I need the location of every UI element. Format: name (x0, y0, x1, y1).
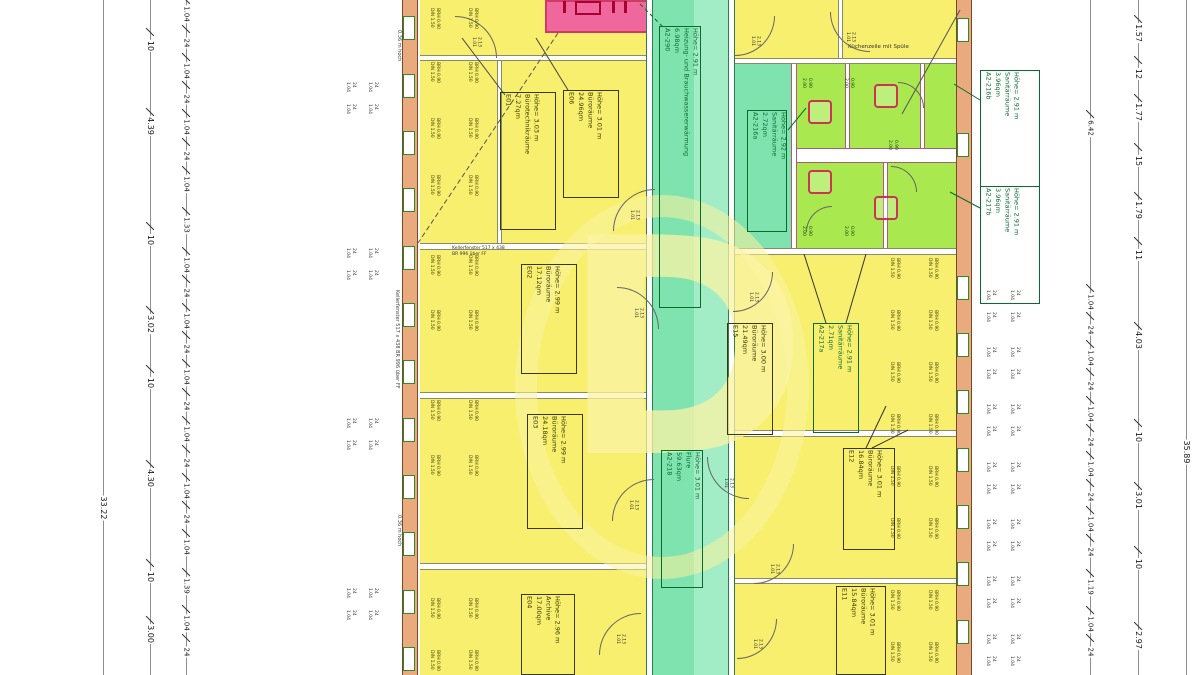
window (403, 647, 415, 671)
wall (845, 64, 850, 148)
window-dim-mark: 1.0424 (1008, 576, 1020, 586)
window (403, 418, 415, 442)
window-dim-mark: 1.0424 (984, 426, 996, 436)
room-use: Bürotechnikräume (522, 94, 531, 228)
dim-label-left-window: 1.04 (183, 175, 190, 193)
window-dim-mark: 1.0424 (1008, 290, 1020, 300)
plumbing-wall (797, 148, 956, 163)
dim-label-right-main: 15 (1134, 155, 1142, 167)
room-height: Höhe= 2.96 m (552, 596, 561, 673)
room-use: Sanitärräume (835, 325, 844, 431)
window-dim-mark: 1.0424 (984, 462, 996, 472)
window-dim-mark: 1.0424 (344, 440, 356, 450)
window (403, 16, 415, 40)
dim-label-left-main: 4.30 (146, 468, 154, 488)
room-area: 17.12qm (533, 266, 542, 372)
room-use: Büroräume (585, 92, 594, 196)
room-label-san216a: A2-216a 2.72qm Sanitärräume Höhe= 2.92 m (747, 110, 787, 232)
dim-label-left-window: 1.04 (183, 5, 190, 23)
room-id: E04 (524, 596, 533, 673)
window-spec-label: DIN 1.50BRH 0.90 (926, 310, 938, 331)
window-dim-mark: 1.0424 (1008, 541, 1020, 551)
dim-total-right: 35.89 (1182, 440, 1190, 465)
window-spec-label: DIN 1.50BRH 0.90 (926, 258, 938, 279)
room-id: E12 (846, 450, 855, 548)
dim-label-right-main: 10 (1134, 558, 1142, 570)
window-dim-mark: 1.0424 (984, 576, 996, 586)
elevator-mark (624, 1, 627, 13)
room-height: Höhe= 3.01 m (874, 450, 883, 548)
room-use: Büroräume (858, 588, 867, 673)
dim-label-right-window: 24 (1087, 492, 1094, 503)
window (403, 303, 415, 327)
window-dim-mark: 1.0424 (366, 588, 378, 598)
room-height: Höhe= 3.00 m (758, 325, 767, 433)
dim-label-right-window: 1.04 (1087, 615, 1094, 633)
dim-label-right-window: 24 (1087, 547, 1094, 558)
dim-label-right-window: 1.04 (1087, 460, 1094, 478)
window (957, 18, 969, 42)
window-spec-label: DIN 1.50BRH 0.90 (428, 598, 440, 619)
window-dim-mark: 1.0424 (984, 598, 996, 608)
dim-label-right-main: 1.77 (1134, 102, 1142, 122)
window-spec-label: DIN 1.50BRH 0.90 (926, 518, 938, 539)
room-use: Sanitärräume (769, 112, 778, 230)
dim-label-left-window: 1.33 (183, 216, 190, 234)
dim-label-left-main: 10 (146, 571, 154, 583)
dim-label-right-window: 1.04 (1087, 515, 1094, 533)
window (403, 590, 415, 614)
room-label-san216b: A2-216b 3.96qm Sanitärräume Höhe= 2.91 m (980, 70, 1040, 188)
window-spec-label: DIN 1.50BRH 0.90 (888, 590, 900, 611)
window-dim-mark: 1.0424 (366, 82, 378, 92)
room-height: Höhe= 2.91 m (1011, 188, 1020, 302)
sanitary-dim-mark: 2.000.90 (842, 78, 854, 88)
room-area: 3.96qm (992, 72, 1001, 186)
dim-line-right-total (1186, 0, 1187, 675)
window-dim-mark: 1.0424 (1008, 347, 1020, 357)
toilet-fixture (874, 196, 898, 220)
dim-label-right-main: 1.79 (1134, 200, 1142, 220)
door-size-label: 1.012.13 (632, 308, 643, 318)
dim-label-right-window: 1.04 (1087, 405, 1094, 423)
dim-label-left-window: 24 (183, 38, 190, 49)
room-use: Büroräume (865, 450, 874, 548)
window (403, 131, 415, 155)
wall (420, 55, 646, 61)
room-id: E06 (566, 92, 575, 196)
window (957, 620, 969, 644)
dim-label-left-window: 24 (183, 288, 190, 299)
dim-label-left-window: 24 (183, 647, 190, 658)
room-id: E15 (730, 325, 739, 433)
dim-label-left-window: 24 (183, 344, 190, 355)
room-id: E01 (503, 94, 512, 228)
window-spec-label: DIN 1.50BRH 0.90 (428, 8, 440, 29)
window-spec-label: DIN 1.50BRH 0.90 (466, 455, 478, 476)
window (403, 532, 415, 556)
window-dim-mark: 1.0424 (1008, 312, 1020, 322)
window-dim-mark: 1.0424 (344, 270, 356, 280)
room-label-san217b: A2-217b 3.96qm Sanitärräume Höhe= 2.91 m (980, 186, 1040, 304)
dim-label-left-window: 1.04 (183, 614, 190, 632)
window-dim-mark: 1.0424 (1008, 519, 1020, 529)
room-label-heating: A2-290 6.98qm Heizung- und Brauchwassere… (659, 26, 701, 308)
dim-label-right-window: 6.42 (1087, 119, 1094, 137)
window-spec-label: DIN 1.50BRH 0.90 (466, 175, 478, 196)
window-dim-mark: 1.0424 (366, 270, 378, 280)
room-id: E11 (839, 588, 848, 673)
dim-label-left-window: 24 (183, 458, 190, 469)
room-label-e04: E04 17.00qm Archive Höhe= 2.96 m (521, 594, 575, 675)
door-size-label: 1.012.13 (628, 210, 639, 220)
room-id: A2-217a (816, 325, 825, 431)
window (403, 74, 415, 98)
room-id: E03 (530, 416, 539, 527)
room-label-e06: E06 24.96qm Büroräume Höhe= 3.01 m (563, 90, 619, 198)
room-label-e02: E02 17.12qm Büroräume Höhe= 2.99 m (521, 264, 577, 374)
door-size-label: 1.012.13 (614, 634, 625, 644)
window-dim-mark: 1.0424 (984, 484, 996, 494)
dim-label-left-window: 24 (183, 151, 190, 162)
window (957, 562, 969, 586)
window (957, 333, 969, 357)
window-dim-mark: 1.0424 (1008, 634, 1020, 644)
toilet-fixture (808, 170, 832, 194)
room-height: Höhe= 3.03 m (531, 94, 540, 228)
sanitary-dim-mark: 2.000.90 (842, 226, 854, 236)
room-area: 24.96qm (575, 92, 584, 196)
room-use: Archive (543, 596, 552, 673)
door-size-label: 1.012.13 (768, 564, 779, 574)
dim-total-left: 33.22 (99, 496, 107, 521)
window (957, 133, 969, 157)
room-height: Höhe= 2.91 m (690, 28, 699, 306)
window-dim-mark: 1.0424 (984, 656, 996, 666)
floorplan-canvas: D E01 7.27qm Bürotechnikräume Höhe= 3.03… (0, 0, 1200, 675)
window-spec-label: DIN 1.50BRH 0.90 (888, 466, 900, 487)
window-spec-label: DIN 1.50BRH 0.90 (888, 642, 900, 663)
window-dim-mark: 1.0424 (366, 610, 378, 620)
window-dim-mark: 1.0424 (366, 418, 378, 428)
window-note-vertical: Kellerfenster 517 x 438 BR 996 über FF (394, 290, 400, 389)
room-use: Büroräume (549, 416, 558, 527)
sanitary-dim-mark: 2.000.90 (886, 140, 898, 150)
window-spec-label: DIN 1.50BRH 0.90 (888, 362, 900, 383)
window-dim-mark: 1.0424 (344, 610, 356, 620)
room-use: Büroräume (543, 266, 552, 372)
window-dim-mark: 1.0424 (1008, 656, 1020, 666)
sill-note: 0.36 m hoch (396, 515, 402, 546)
window-dim-mark: 1.0424 (984, 634, 996, 644)
window-dim-mark: 1.0424 (984, 347, 996, 357)
room-use: Sanitärräume (1002, 188, 1011, 302)
toilet-fixture (808, 100, 832, 124)
exterior-wall-left (402, 0, 418, 675)
window-spec-label: DIN 1.50BRH 0.90 (888, 518, 900, 539)
room-area: 24.18qm (539, 416, 548, 527)
door-size-label: 1.012.13 (749, 36, 760, 46)
dim-label-left-window: 1.04 (183, 118, 190, 136)
window (957, 448, 969, 472)
room-use: Sanitärräume (1002, 72, 1011, 186)
room-label-e11: E11 15.84qm Büroräume Höhe= 3.01 m (836, 586, 886, 675)
room-label-e03: E03 24.18qm Büroräume Höhe= 2.99 m (527, 414, 583, 529)
room-area: 3.96qm (992, 188, 1001, 302)
dim-label-right-main: 11 (1134, 249, 1142, 261)
dim-label-right-main: 2.97 (1134, 630, 1142, 650)
window (403, 475, 415, 499)
door-size-label: 1.012.13 (470, 37, 481, 47)
room-height: Höhe= 3.01 m (867, 588, 876, 673)
dim-label-left-window: 24 (183, 514, 190, 525)
dim-label-right-window: 24 (1087, 381, 1094, 392)
dim-label-left-window: 1.04 (183, 312, 190, 330)
dim-label-left-window: 1.04 (183, 538, 190, 556)
room-area: 7.27qm (512, 94, 521, 228)
elevator-door-mark (575, 1, 601, 15)
window-spec-label: DIN 1.50BRH 0.90 (926, 414, 938, 435)
room-area: 17.00qm (533, 596, 542, 673)
room-area: 6.98qm (671, 28, 680, 306)
room-label-e01: E01 7.27qm Bürotechnikräume Höhe= 3.03 m (500, 92, 556, 230)
window-dim-mark: 1.0424 (344, 588, 356, 598)
dim-label-right-window: 24 (1087, 325, 1094, 336)
dim-label-left-window: 1.04 (183, 482, 190, 500)
window-spec-label: DIN 1.50BRH 0.90 (428, 650, 440, 671)
room-id: A2-290 (662, 28, 671, 306)
window-dim-mark: 1.0424 (366, 248, 378, 258)
window-spec-label: DIN 1.50BRH 0.90 (466, 400, 478, 421)
window-dim-mark: 1.0424 (1008, 404, 1020, 414)
room-label-e15: E15 21.49qm Büroräume Höhe= 3.00 m (727, 323, 773, 435)
window-spec-label: DIN 1.50BRH 0.90 (428, 455, 440, 476)
dim-label-left-main: 4.39 (146, 116, 154, 136)
dim-label-right-window: 1.04 (1087, 349, 1094, 367)
room-id: A2-216a (750, 112, 759, 230)
room-area: 2.72qm (759, 112, 768, 230)
window-spec-label: DIN 1.50BRH 0.90 (888, 414, 900, 435)
window-dim-mark: 1.0424 (984, 541, 996, 551)
dim-label-right-main: 10 (1134, 431, 1142, 443)
toilet-fixture (874, 84, 898, 108)
dim-label-right-window: 1.04 (1087, 293, 1094, 311)
window-dim-mark: 1.0424 (344, 248, 356, 258)
room-id: A2-218 (664, 452, 673, 586)
window-dim-mark: 1.0424 (1008, 598, 1020, 608)
dim-label-left-window: 1.39 (183, 577, 190, 595)
room-use: Flure (683, 452, 692, 586)
room-area: 16.84qm (855, 450, 864, 548)
dim-label-left-window: 1.04 (183, 425, 190, 443)
window-dim-mark: 1.0424 (366, 440, 378, 450)
door-size-label: 1.012.13 (751, 639, 762, 649)
window-spec-label: DIN 1.50BRH 0.90 (466, 310, 478, 331)
window-spec-label: DIN 1.50BRH 0.90 (428, 400, 440, 421)
window (403, 360, 415, 384)
room-label-flur: A2-218 59.63qm Flure Höhe= 3.01 m (661, 450, 703, 588)
room-height: Höhe= 2.91 m (1011, 72, 1020, 186)
dim-label-right-main: 12 (1134, 68, 1142, 80)
dim-label-right-main: 3.01 (1134, 490, 1142, 510)
dim-label-left-main: 3.02 (146, 314, 154, 334)
window-dim-mark: 1.0424 (984, 519, 996, 529)
door-size-label: 1.012.13 (747, 292, 758, 302)
dim-label-left-main: 10 (146, 377, 154, 389)
room-height: Höhe= 2.91 m (844, 325, 853, 431)
room-area: 15.84qm (848, 588, 857, 673)
dim-label-right-window: 24 (1087, 647, 1094, 658)
room-area: 21.49qm (739, 325, 748, 433)
door-size-label: 1.012.13 (627, 500, 638, 510)
window-spec-label: DIN 1.50BRH 0.90 (466, 118, 478, 139)
window-dim-mark: 1.0424 (984, 404, 996, 414)
room-use: Büroräume (749, 325, 758, 433)
window (403, 246, 415, 270)
elevator-mark (612, 1, 615, 13)
dim-label-right-window: 24 (1087, 437, 1094, 448)
room-id: A2-216b (983, 72, 992, 186)
dim-label-left-main: 10 (146, 40, 154, 52)
room-area: 59.63qm (673, 452, 682, 586)
dim-label-right-main: 1.57 (1134, 23, 1142, 43)
room-height: Höhe= 2.99 m (552, 266, 561, 372)
window (957, 505, 969, 529)
dim-label-left-window: 24 (183, 401, 190, 412)
window-spec-label: DIN 1.50BRH 0.90 (926, 466, 938, 487)
window-dim-mark: 1.0424 (1008, 484, 1020, 494)
window-spec-label: DIN 1.50BRH 0.90 (466, 650, 478, 671)
room-area: 2.71qm (825, 325, 834, 431)
room-id: E02 (524, 266, 533, 372)
dim-label-left-window: 1.04 (183, 62, 190, 80)
dim-label-right-main: 4.03 (1134, 330, 1142, 350)
elevator-mark (563, 1, 566, 13)
dim-label-left-main: 3.00 (146, 624, 154, 644)
window-spec-label: DIN 1.50BRH 0.90 (888, 258, 900, 279)
window-spec-label: DIN 1.50BRH 0.90 (428, 175, 440, 196)
dim-label-left-window: 1.04 (183, 256, 190, 274)
window-spec-label: DIN 1.50BRH 0.90 (428, 255, 440, 276)
window (957, 276, 969, 300)
door-size-label: 1.012.13 (722, 478, 733, 488)
dim-line-left-total (103, 0, 104, 675)
window-dim-mark: 1.0424 (984, 290, 996, 300)
dim-label-left-window: 1.04 (183, 368, 190, 386)
window-spec-label: DIN 1.50BRH 0.90 (888, 310, 900, 331)
window-spec-label: DIN 1.50BRH 0.90 (926, 642, 938, 663)
sill-note: 0.36 m hoch (396, 30, 402, 61)
room-id: A2-217b (983, 188, 992, 302)
dim-label-left-window: 24 (183, 94, 190, 105)
dim-label-right-window: 1.19 (1087, 578, 1094, 596)
room-height: Höhe= 3.01 m (692, 452, 701, 586)
room-height: Höhe= 2.99 m (558, 416, 567, 527)
window-spec-label: DIN 1.50BRH 0.90 (926, 362, 938, 383)
window-dim-mark: 1.0424 (366, 104, 378, 114)
window-spec-label: DIN 1.50BRH 0.90 (466, 62, 478, 83)
window-dim-mark: 1.0424 (344, 82, 356, 92)
window-spec-label: DIN 1.50BRH 0.90 (428, 62, 440, 83)
window-dim-mark: 1.0424 (344, 418, 356, 428)
window-dim-mark: 1.0424 (984, 312, 996, 322)
window-dim-mark: 1.0424 (344, 104, 356, 114)
room-use: Heizung- und Brauchwassererwärmung (681, 28, 690, 306)
window-spec-label: DIN 1.50BRH 0.90 (466, 255, 478, 276)
room-height: Höhe= 2.92 m (778, 112, 787, 230)
door-size-label: 1.012.13 (844, 32, 855, 42)
window-dim-mark: 1.0424 (1008, 369, 1020, 379)
room-label-san217a: A2-217a 2.71qm Sanitärräume Höhe= 2.91 m (813, 323, 859, 433)
window-spec-label: DIN 1.50BRH 0.90 (926, 590, 938, 611)
window-spec-label: DIN 1.50BRH 0.90 (466, 598, 478, 619)
window-dim-mark: 1.0424 (1008, 462, 1020, 472)
window-dim-mark: 1.0424 (984, 369, 996, 379)
window-note-line1: Kellerfenster 517 x 438 (452, 246, 505, 251)
window (957, 390, 969, 414)
sanitary-dim-mark: 2.000.90 (800, 78, 812, 88)
dim-label-left-main: 10 (146, 234, 154, 246)
window-spec-label: DIN 1.50BRH 0.90 (428, 118, 440, 139)
window (403, 188, 415, 212)
room-height: Höhe= 3.01 m (594, 92, 603, 196)
window-dim-mark: 1.0424 (1008, 426, 1020, 436)
window-spec-label: DIN 1.50BRH 0.90 (428, 310, 440, 331)
